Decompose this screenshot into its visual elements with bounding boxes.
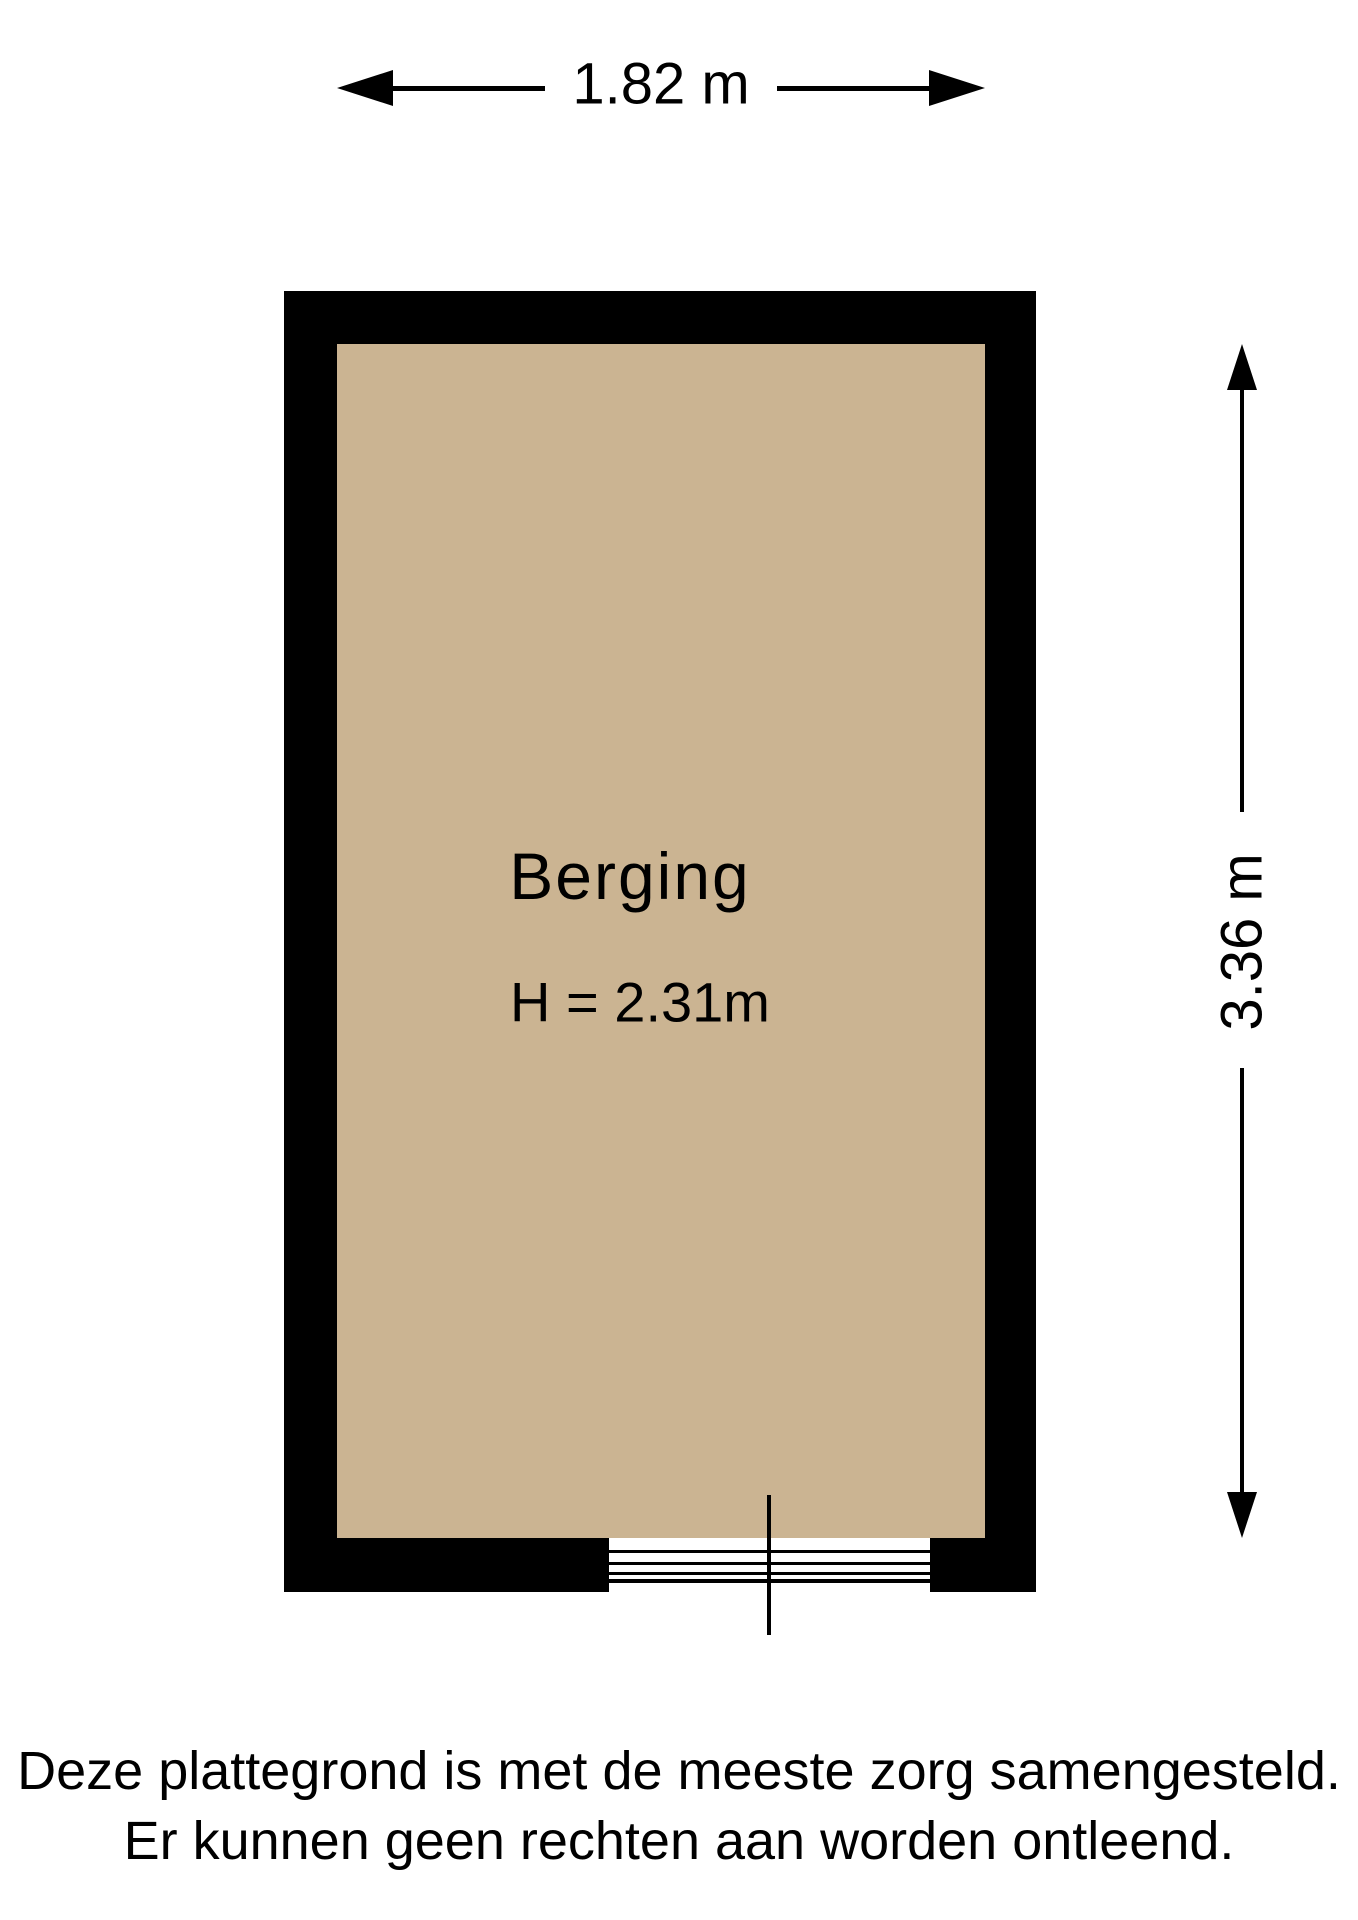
wall-bottom-right: [930, 1538, 1036, 1592]
disclaimer-line-2: Er kunnen geen rechten aan worden ontlee…: [0, 1808, 1358, 1874]
width-dimension-label: 1.82 m: [572, 51, 749, 118]
height-dimension-line-top: [1240, 388, 1244, 812]
width-dimension-line-right: [777, 86, 930, 91]
floor-plan-canvas: 1.82 m Berging H = 2.31m 3.36 m Deze pla…: [0, 0, 1358, 1920]
disclaimer-line-1: Deze plattegrond is met de meeste zorg s…: [0, 1738, 1358, 1804]
wall-top: [284, 291, 1036, 344]
height-dimension-line-bottom: [1240, 1068, 1244, 1492]
width-dimension-line-left: [391, 86, 545, 91]
height-dimension-label: 3.36 m: [1209, 853, 1276, 1030]
room-floor: [337, 344, 985, 1538]
wall-bottom-left: [284, 1538, 609, 1592]
door-swing-line: [767, 1495, 771, 1635]
height-dimension-arrowhead-top-icon: [1227, 344, 1257, 390]
width-dimension-arrowhead-right-icon: [929, 70, 985, 106]
room-name-label: Berging: [509, 838, 751, 914]
width-dimension-arrowhead-left-icon: [337, 70, 393, 106]
wall-left: [284, 291, 337, 1592]
wall-right: [983, 291, 1036, 1592]
height-dimension-arrowhead-bottom-icon: [1227, 1492, 1257, 1538]
room-ceiling-height-label: H = 2.31m: [510, 970, 770, 1035]
